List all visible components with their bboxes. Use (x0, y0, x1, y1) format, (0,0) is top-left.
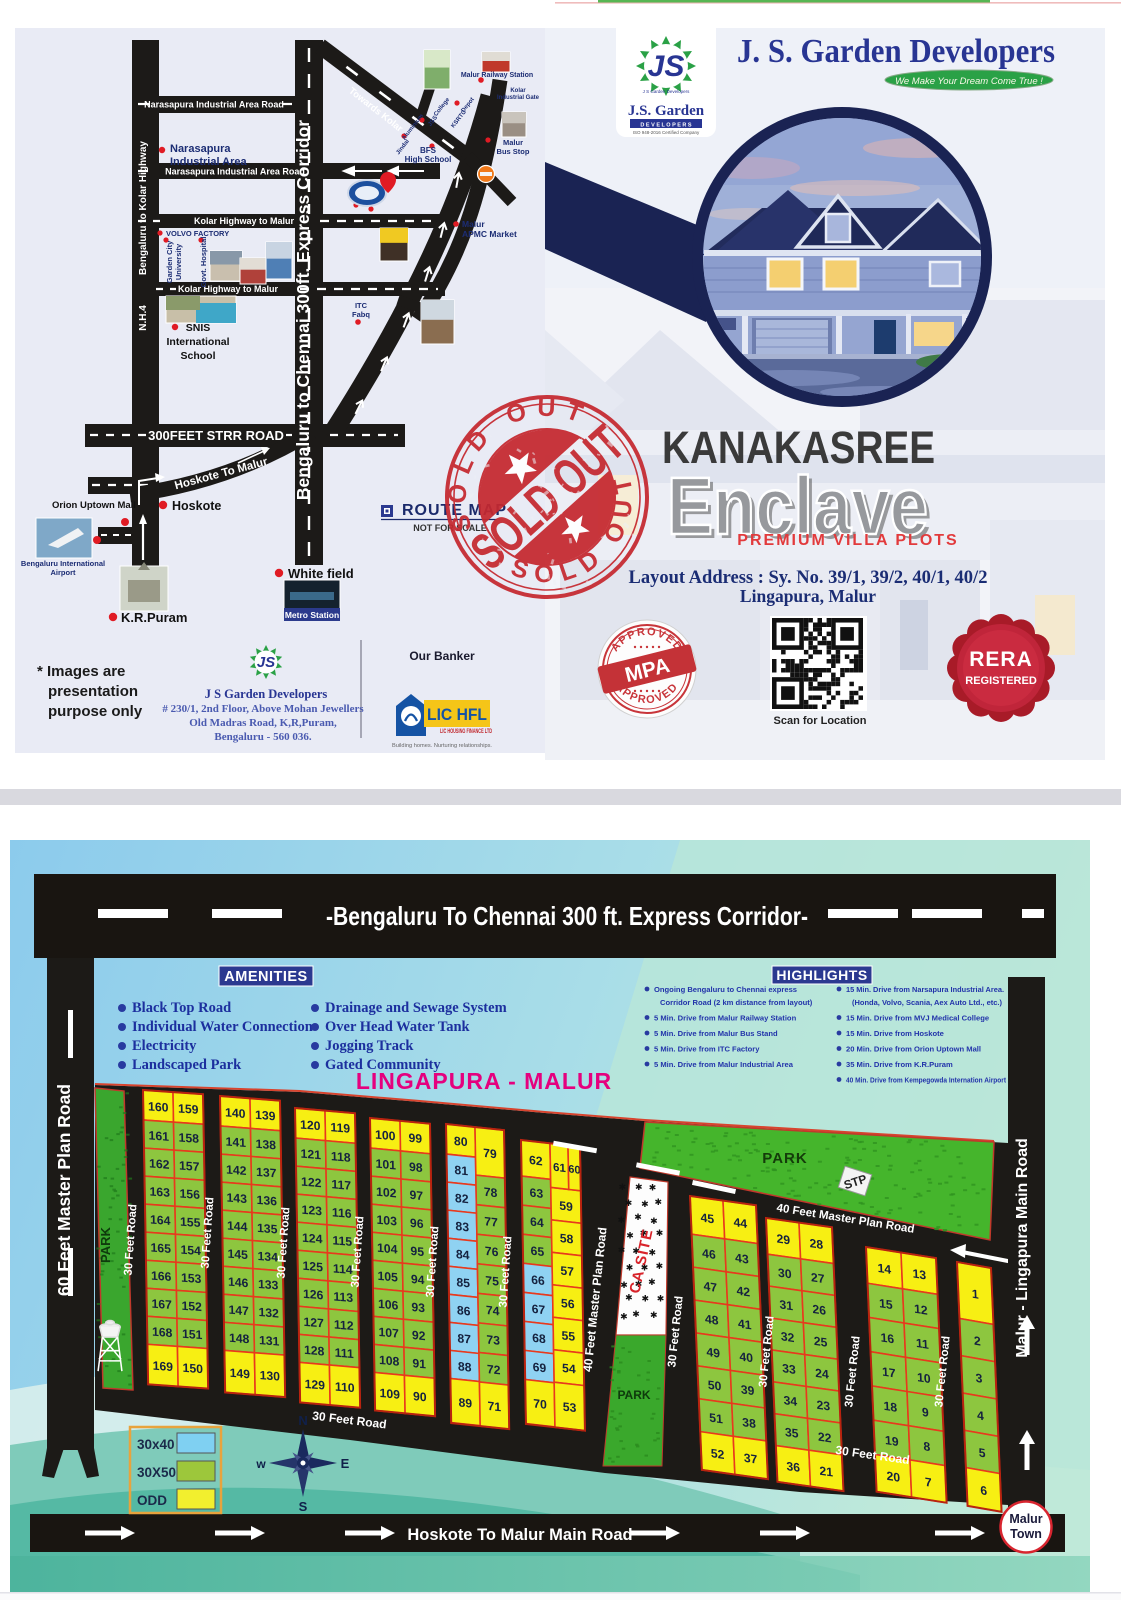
svg-text:3: 3 (975, 1371, 983, 1386)
svg-text:40 Min. Drive from Kempegowda: 40 Min. Drive from Kempegowda Internatio… (846, 1076, 1006, 1085)
svg-text:123: 123 (301, 1203, 322, 1219)
svg-text:LINGAPURA - MALUR: LINGAPURA - MALUR (356, 1068, 612, 1094)
svg-text:132: 132 (258, 1305, 279, 1321)
svg-text:21: 21 (819, 1464, 833, 1480)
svg-text:Fabq: Fabq (352, 310, 370, 319)
svg-text:88: 88 (458, 1359, 472, 1374)
svg-text:SNIS: SNIS (186, 322, 211, 334)
svg-text:ODD: ODD (137, 1493, 167, 1508)
svg-text:61: 61 (553, 1162, 567, 1175)
svg-text:128: 128 (304, 1343, 325, 1359)
svg-text:133: 133 (258, 1277, 279, 1293)
svg-text:140: 140 (225, 1105, 246, 1121)
svg-text:95: 95 (410, 1244, 424, 1259)
svg-text:58: 58 (560, 1231, 574, 1247)
svg-text:142: 142 (226, 1162, 247, 1178)
svg-text:w: w (255, 1457, 266, 1471)
svg-text:PARK: PARK (762, 1150, 807, 1167)
svg-text:10: 10 (917, 1370, 931, 1386)
svg-text:115: 115 (332, 1233, 352, 1249)
svg-text:157: 157 (179, 1159, 200, 1174)
svg-text:✱: ✱ (625, 1198, 633, 1208)
svg-text:Layout Address : Sy. No. 39/1,: Layout Address : Sy. No. 39/1, 39/2, 40/… (629, 568, 988, 588)
svg-text:Jogging Track: Jogging Track (325, 1038, 414, 1054)
svg-text:15 Min. Drive from Hoskote: 15 Min. Drive from Hoskote (846, 1029, 944, 1038)
svg-text:165: 165 (150, 1241, 171, 1256)
svg-text:presentation: presentation (48, 683, 138, 700)
svg-text:121: 121 (300, 1147, 321, 1163)
svg-text:137: 137 (256, 1165, 277, 1181)
svg-text:5: 5 (978, 1445, 986, 1460)
svg-text:5 Min. Drive from Malur Bus St: 5 Min. Drive from Malur Bus Stand (654, 1029, 778, 1038)
svg-text:77: 77 (484, 1214, 498, 1229)
svg-text:120: 120 (300, 1117, 321, 1133)
svg-text:5 Min. Drive from ITC Factory: 5 Min. Drive from ITC Factory (654, 1045, 760, 1054)
svg-text:31: 31 (779, 1297, 793, 1313)
svg-text:52: 52 (711, 1446, 725, 1462)
svg-text:APMC Market: APMC Market (462, 229, 517, 239)
svg-text:164: 164 (150, 1213, 171, 1228)
svg-text:14: 14 (877, 1261, 891, 1277)
svg-text:Landscaped Park: Landscaped Park (132, 1057, 242, 1073)
svg-text:23: 23 (816, 1398, 830, 1414)
svg-text:ISO 948-2016 Certified Company: ISO 948-2016 Certified Company (633, 130, 700, 135)
svg-text:LIC HOUSING FINANCE LTD: LIC HOUSING FINANCE LTD (440, 729, 492, 735)
svg-text:159: 159 (178, 1101, 199, 1116)
svg-text:5 Min. Drive from Malur Indust: 5 Min. Drive from Malur Industrial Area (654, 1060, 794, 1069)
svg-text:96: 96 (410, 1216, 424, 1231)
svg-text:Corridor Road (2 km distance f: Corridor Road (2 km distance from layout… (660, 998, 813, 1007)
svg-text:J S Garden Developers: J S Garden Developers (205, 687, 328, 701)
svg-text:5 Min. Drive from Malur Railwa: 5 Min. Drive from Malur Railway Station (654, 1014, 797, 1023)
svg-text:65: 65 (530, 1244, 544, 1260)
svg-text:135: 135 (257, 1221, 278, 1237)
svg-text:8: 8 (923, 1439, 931, 1454)
svg-text:90: 90 (413, 1389, 427, 1404)
svg-text:Ongoing Bengaluru to Chennai e: Ongoing Bengaluru to Chennai express (654, 985, 797, 994)
svg-text:Our Banker: Our Banker (409, 649, 475, 663)
svg-text:124: 124 (302, 1231, 323, 1247)
svg-text:Bus Stop: Bus Stop (497, 147, 530, 156)
svg-text:113: 113 (333, 1289, 353, 1305)
svg-text:93: 93 (411, 1300, 425, 1315)
svg-text:PREMIUM VILLA PLOTS: PREMIUM VILLA PLOTS (737, 532, 958, 549)
svg-text:161: 161 (148, 1128, 169, 1143)
svg-text:Bengaluru - 560 036.: Bengaluru - 560 036. (214, 731, 311, 743)
svg-text:Narasapura: Narasapura (170, 143, 231, 155)
svg-text:4: 4 (977, 1408, 985, 1423)
svg-text:148: 148 (229, 1331, 250, 1347)
svg-text:Industrial Area: Industrial Area (170, 156, 247, 168)
svg-text:153: 153 (181, 1271, 202, 1286)
svg-text:15 Min. Drive from MVJ Medical: 15 Min. Drive from MVJ Medical College (846, 1014, 989, 1023)
svg-text:45: 45 (700, 1211, 714, 1227)
svg-text:108: 108 (379, 1353, 400, 1369)
svg-text:97: 97 (409, 1188, 423, 1203)
svg-text:162: 162 (149, 1156, 170, 1171)
svg-text:✱: ✱ (632, 1309, 640, 1319)
svg-text:7: 7 (925, 1475, 933, 1490)
svg-text:✱: ✱ (617, 1215, 625, 1225)
svg-text:122: 122 (301, 1175, 322, 1191)
svg-text:Scan for Location: Scan for Location (774, 715, 867, 727)
svg-text:138: 138 (255, 1137, 276, 1153)
svg-text:Bengaluru to Chennai 300ft. Ex: Bengaluru to Chennai 300ft. Express Corr… (293, 120, 313, 500)
svg-text:139: 139 (255, 1108, 276, 1124)
svg-text:15 Min. Drive from Narsapura I: 15 Min. Drive from Narsapura Industrial … (846, 985, 1004, 994)
svg-text:20 Min. Drive from Orion Uptow: 20 Min. Drive from Orion Uptown Mall (846, 1045, 981, 1054)
svg-text:85: 85 (456, 1275, 470, 1290)
svg-text:152: 152 (181, 1299, 202, 1314)
svg-text:✱: ✱ (657, 1294, 665, 1304)
svg-text:Bengaluru International: Bengaluru International (21, 559, 105, 568)
svg-text:Hoskote To Malur Main Road: Hoskote To Malur Main Road (407, 1526, 632, 1544)
svg-text:149: 149 (230, 1366, 251, 1382)
svg-text:VOLVO FACTORY: VOLVO FACTORY (166, 229, 229, 238)
svg-text:18: 18 (883, 1399, 897, 1415)
svg-text:101: 101 (376, 1157, 397, 1173)
svg-text:300FEET STRR ROAD: 300FEET STRR ROAD (148, 428, 284, 443)
svg-text:HIGHLIGHTS: HIGHLIGHTS (776, 967, 867, 983)
svg-text:73: 73 (486, 1332, 500, 1347)
svg-text:Individual Water Connection: Individual Water Connection (132, 1019, 313, 1035)
svg-text:University: University (174, 243, 183, 280)
svg-text:35 Min. Drive from K.R.Puram: 35 Min. Drive from K.R.Puram (846, 1060, 953, 1069)
svg-text:86: 86 (457, 1303, 471, 1318)
svg-text:107: 107 (378, 1325, 399, 1341)
svg-text:17: 17 (882, 1365, 896, 1381)
svg-text:117: 117 (331, 1177, 351, 1193)
svg-text:LIC HFL: LIC HFL (427, 705, 487, 724)
svg-text:60: 60 (568, 1163, 580, 1176)
svg-text:41: 41 (738, 1317, 752, 1333)
svg-text:1: 1 (972, 1287, 980, 1302)
svg-text:68: 68 (532, 1331, 546, 1347)
svg-text:Malur: Malur (503, 138, 523, 147)
svg-text:154: 154 (180, 1243, 201, 1258)
svg-text:JS: JS (648, 50, 685, 83)
svg-text:118: 118 (331, 1149, 351, 1165)
svg-text:160: 160 (148, 1099, 169, 1114)
svg-text:44: 44 (733, 1215, 747, 1231)
svg-text:145: 145 (227, 1247, 248, 1263)
svg-text:✱: ✱ (641, 1199, 649, 1209)
svg-text:78: 78 (484, 1185, 498, 1200)
svg-text:102: 102 (376, 1185, 397, 1201)
svg-text:129: 129 (305, 1377, 326, 1393)
svg-text:56: 56 (561, 1296, 575, 1312)
svg-text:Malur: Malur (462, 219, 485, 229)
svg-text:K.R.Puram: K.R.Puram (121, 610, 187, 625)
svg-text:12: 12 (914, 1302, 928, 1318)
svg-text:36: 36 (786, 1459, 800, 1475)
svg-text:-Bengaluru To Chennai 300 ft.: -Bengaluru To Chennai 300 ft. Express Co… (326, 901, 808, 931)
svg-text:150: 150 (183, 1361, 204, 1376)
svg-text:REGISTERED: REGISTERED (965, 675, 1037, 687)
svg-text:156: 156 (179, 1187, 200, 1202)
svg-text:Building homes. Nurturing rela: Building homes. Nurturing relationships. (392, 743, 492, 749)
svg-text:130: 130 (260, 1368, 281, 1384)
svg-text:146: 146 (228, 1275, 249, 1291)
svg-text:30x40: 30x40 (137, 1437, 175, 1452)
svg-text:37: 37 (744, 1451, 758, 1467)
svg-text:84: 84 (456, 1247, 470, 1262)
svg-text:32: 32 (780, 1329, 794, 1345)
svg-text:Kolar Highway to Malur: Kolar Highway to Malur (178, 284, 279, 294)
svg-text:✱: ✱ (619, 1182, 627, 1192)
svg-text:* Images are: * Images are (37, 663, 125, 680)
svg-text:38: 38 (742, 1415, 756, 1431)
svg-text:126: 126 (303, 1287, 324, 1303)
svg-text:136: 136 (256, 1193, 277, 1209)
svg-text:29: 29 (776, 1232, 790, 1248)
svg-text:ITC: ITC (355, 301, 368, 310)
svg-text:✱: ✱ (649, 1182, 657, 1192)
svg-text:RERA: RERA (969, 648, 1033, 671)
svg-text:69: 69 (533, 1360, 547, 1376)
svg-text:99: 99 (408, 1131, 422, 1146)
svg-text:28: 28 (809, 1236, 823, 1252)
svg-text:30: 30 (778, 1266, 792, 1282)
svg-text:6: 6 (980, 1483, 988, 1498)
svg-text:67: 67 (532, 1302, 546, 1318)
svg-text:2: 2 (974, 1334, 982, 1349)
svg-text:Govt. Hospital: Govt. Hospital (199, 237, 208, 288)
svg-text:Orion Uptown Mall: Orion Uptown Mall (52, 500, 136, 511)
svg-text:94: 94 (411, 1272, 425, 1287)
svg-text:35: 35 (785, 1425, 799, 1441)
svg-text:43: 43 (735, 1251, 749, 1267)
svg-text:✱: ✱ (618, 1245, 626, 1255)
svg-text:Industrial Gate: Industrial Gate (497, 95, 540, 101)
svg-text:School: School (180, 350, 215, 362)
svg-text:39: 39 (741, 1382, 755, 1398)
svg-text:We Make Your Dream Come True !: We Make Your Dream Come True ! (895, 76, 1043, 87)
svg-text:D E V E L O P E R S: D E V E L O P E R S (640, 123, 691, 129)
svg-text:BFS: BFS (420, 146, 437, 155)
svg-text:110: 110 (335, 1380, 355, 1396)
svg-text:PARK: PARK (98, 1226, 113, 1262)
svg-text:80: 80 (454, 1134, 468, 1149)
svg-text:25: 25 (813, 1334, 827, 1350)
svg-text:19: 19 (885, 1433, 899, 1449)
svg-text:purpose only: purpose only (48, 703, 143, 720)
svg-text:Drainage and Sewage System: Drainage and Sewage System (325, 1000, 507, 1016)
svg-text:53: 53 (563, 1400, 577, 1416)
svg-text:106: 106 (378, 1297, 399, 1313)
svg-text:Town: Town (1010, 1527, 1042, 1541)
svg-text:✱: ✱ (648, 1277, 656, 1287)
svg-text:Malur Railway Station: Malur Railway Station (461, 72, 533, 79)
svg-text:57: 57 (560, 1264, 574, 1280)
svg-text:30X50: 30X50 (137, 1465, 176, 1480)
svg-text:✱: ✱ (626, 1230, 634, 1240)
svg-text:15: 15 (879, 1296, 893, 1312)
svg-text:134: 134 (257, 1249, 278, 1265)
svg-text:104: 104 (377, 1241, 398, 1257)
svg-text:48: 48 (705, 1312, 719, 1328)
svg-text:141: 141 (225, 1134, 246, 1150)
svg-text:100: 100 (375, 1128, 396, 1144)
svg-text:46: 46 (702, 1246, 716, 1262)
svg-text:E: E (341, 1456, 350, 1471)
svg-text:54: 54 (562, 1361, 576, 1377)
svg-text:✱: ✱ (635, 1182, 643, 1192)
svg-text:Electricity: Electricity (132, 1038, 197, 1054)
svg-text:155: 155 (180, 1215, 201, 1230)
svg-text:131: 131 (259, 1333, 280, 1349)
svg-text:66: 66 (531, 1273, 545, 1289)
svg-text:9: 9 (922, 1405, 930, 1420)
svg-text:24: 24 (815, 1366, 829, 1382)
svg-text:33: 33 (782, 1361, 796, 1377)
svg-text:55: 55 (561, 1328, 575, 1344)
svg-text:✱: ✱ (656, 1228, 664, 1238)
svg-text:International: International (166, 336, 229, 348)
svg-text:22: 22 (818, 1430, 832, 1446)
svg-text:147: 147 (228, 1303, 249, 1319)
svg-text:87: 87 (457, 1331, 471, 1346)
svg-text:Old Madras Road, K,R,Puram,: Old Madras Road, K,R,Puram, (189, 717, 337, 729)
svg-text:79: 79 (483, 1146, 497, 1161)
svg-text:62: 62 (529, 1153, 543, 1169)
svg-text:Lingapura, Malur: Lingapura, Malur (740, 586, 876, 606)
svg-text:103: 103 (376, 1213, 397, 1229)
svg-text:76: 76 (485, 1244, 499, 1259)
svg-text:16: 16 (880, 1330, 894, 1346)
svg-text:Narasapura Industrial Area Roa: Narasapura Industrial Area Road (165, 167, 305, 177)
svg-text:27: 27 (811, 1270, 825, 1286)
svg-text:42: 42 (736, 1284, 750, 1300)
svg-text:13: 13 (912, 1266, 926, 1282)
svg-text:40: 40 (739, 1349, 753, 1365)
svg-text:34: 34 (783, 1393, 797, 1409)
svg-text:71: 71 (487, 1399, 501, 1414)
svg-text:59: 59 (559, 1199, 573, 1215)
svg-text:109: 109 (379, 1386, 400, 1402)
svg-text:PARK: PARK (617, 1388, 650, 1402)
svg-text:Garden City: Garden City (165, 240, 174, 283)
svg-text:91: 91 (412, 1356, 426, 1371)
svg-text:89: 89 (458, 1395, 472, 1410)
svg-text:83: 83 (455, 1219, 469, 1234)
svg-text:# 230/1, 2nd Floor, Above Moha: # 230/1, 2nd Floor, Above Mohan Jeweller… (162, 703, 364, 715)
svg-text:163: 163 (149, 1184, 170, 1199)
svg-text:(Honda, Volvo, Scania, Aex Aut: (Honda, Volvo, Scania, Aex Auto Ltd., et… (852, 998, 1002, 1007)
svg-text:AMENITIES: AMENITIES (224, 969, 307, 985)
svg-text:High School: High School (405, 155, 452, 164)
svg-text:116: 116 (332, 1205, 352, 1221)
svg-text:✱: ✱ (650, 1216, 658, 1226)
svg-text:143: 143 (226, 1191, 247, 1207)
svg-text:168: 168 (152, 1325, 173, 1340)
svg-text:70: 70 (533, 1396, 547, 1412)
svg-text:127: 127 (303, 1315, 324, 1331)
svg-text:64: 64 (530, 1215, 544, 1231)
svg-text:81: 81 (454, 1163, 468, 1178)
svg-text:Airport: Airport (51, 568, 77, 577)
svg-text:125: 125 (302, 1259, 323, 1275)
svg-text:Black Top Road: Black Top Road (132, 1000, 231, 1016)
svg-text:20: 20 (886, 1469, 900, 1485)
svg-text:92: 92 (412, 1328, 426, 1343)
svg-text:J S Garden Developers: J S Garden Developers (643, 89, 691, 94)
svg-text:166: 166 (151, 1269, 172, 1284)
svg-text:111: 111 (335, 1345, 354, 1361)
svg-text:S: S (299, 1499, 308, 1514)
svg-text:75: 75 (485, 1273, 499, 1288)
svg-text:JS: JS (257, 654, 275, 671)
svg-text:169: 169 (153, 1359, 174, 1374)
svg-text:✱: ✱ (650, 1310, 658, 1320)
svg-text:✱: ✱ (634, 1212, 642, 1222)
svg-text:144: 144 (227, 1219, 248, 1235)
svg-text:51: 51 (709, 1411, 723, 1427)
svg-text:N: N (298, 1413, 307, 1428)
svg-text:Narasapura Industrial Area Roa: Narasapura Industrial Area Road (144, 100, 284, 110)
svg-text:Hoskote: Hoskote (172, 499, 221, 513)
svg-text:63: 63 (529, 1186, 543, 1202)
svg-text:158: 158 (178, 1131, 199, 1146)
svg-text:151: 151 (182, 1327, 203, 1342)
svg-text:✱: ✱ (625, 1292, 633, 1302)
svg-text:167: 167 (151, 1297, 172, 1312)
svg-text:82: 82 (455, 1191, 469, 1206)
svg-text:11: 11 (916, 1336, 930, 1352)
svg-text:✱: ✱ (655, 1197, 663, 1207)
svg-text:119: 119 (330, 1120, 350, 1136)
svg-text:26: 26 (812, 1302, 826, 1318)
svg-text:47: 47 (703, 1279, 717, 1295)
svg-text:Bengaluru to Kolar Highway: Bengaluru to Kolar Highway (138, 141, 149, 275)
svg-text:105: 105 (377, 1269, 398, 1285)
svg-text:J.S. Garden: J.S. Garden (628, 103, 705, 119)
svg-text:112: 112 (334, 1317, 354, 1333)
svg-text:Kolar: Kolar (510, 88, 526, 94)
svg-text:50: 50 (708, 1378, 722, 1394)
svg-text:72: 72 (487, 1362, 501, 1377)
svg-text:White field: White field (288, 566, 354, 581)
svg-text:Over Head Water Tank: Over Head Water Tank (325, 1019, 471, 1035)
svg-text:98: 98 (409, 1160, 423, 1175)
svg-text:N.H.4: N.H.4 (138, 305, 149, 331)
svg-text:Kolar Highway to Malur: Kolar Highway to Malur (194, 216, 295, 226)
svg-text:Metro Station: Metro Station (285, 610, 339, 620)
svg-text:J. S. Garden Developers: J. S. Garden Developers (737, 33, 1055, 70)
svg-text:✱: ✱ (620, 1311, 628, 1321)
svg-text:✱: ✱ (656, 1261, 664, 1271)
svg-text:49: 49 (706, 1345, 720, 1361)
svg-text:Malur: Malur (1009, 1512, 1042, 1526)
